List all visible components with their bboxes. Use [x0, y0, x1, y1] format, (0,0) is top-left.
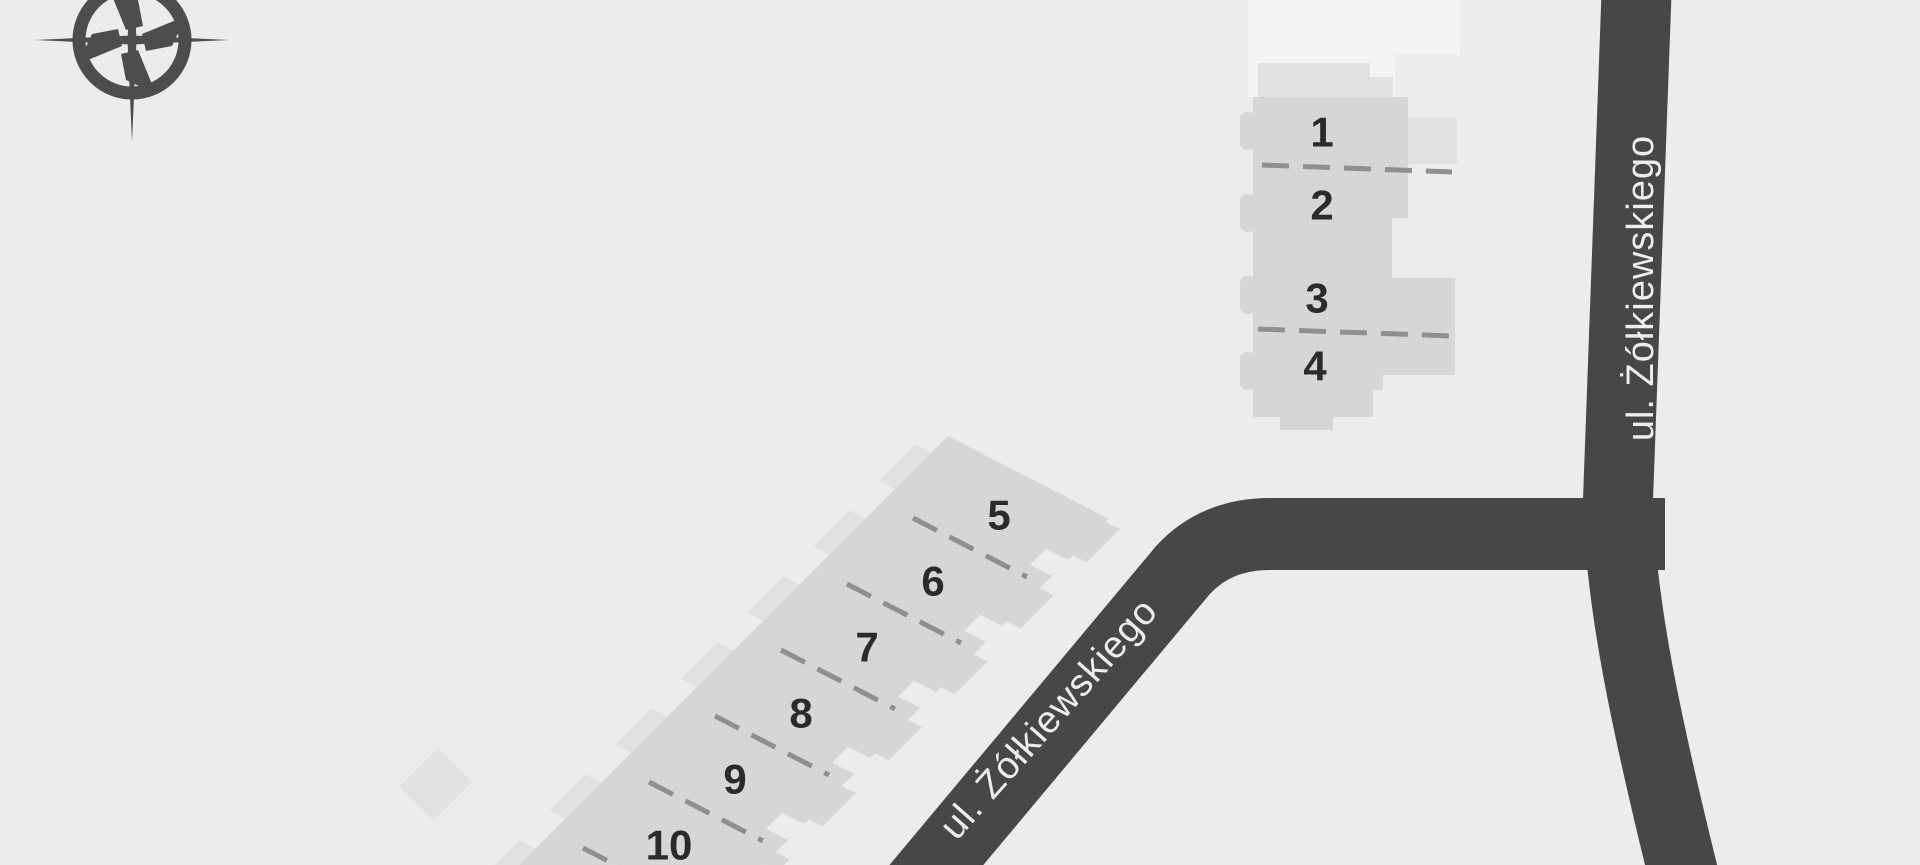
building-number-5: 5 [987, 492, 1010, 539]
road-label-vertical: ul. Żółkiewskiego [1619, 135, 1662, 441]
site-plan-map: 1 2 3 4 5678910 ul. Żółkiewskiego ul. Żó… [0, 0, 1920, 865]
building-annex-right [1408, 118, 1457, 164]
site-plan: 1 2 3 4 5678910 ul. Żółkiewskiego ul. Żó… [0, 0, 1920, 865]
building-number-1: 1 [1310, 109, 1333, 156]
building-number-9: 9 [723, 756, 746, 803]
building-number-3: 3 [1305, 275, 1328, 322]
building-number-6: 6 [921, 558, 944, 605]
building-number-4: 4 [1303, 343, 1327, 390]
building-number-10: 10 [646, 822, 693, 865]
building-number-2: 2 [1310, 182, 1333, 229]
building-number-7: 7 [855, 624, 878, 671]
building-number-8: 8 [789, 690, 812, 737]
